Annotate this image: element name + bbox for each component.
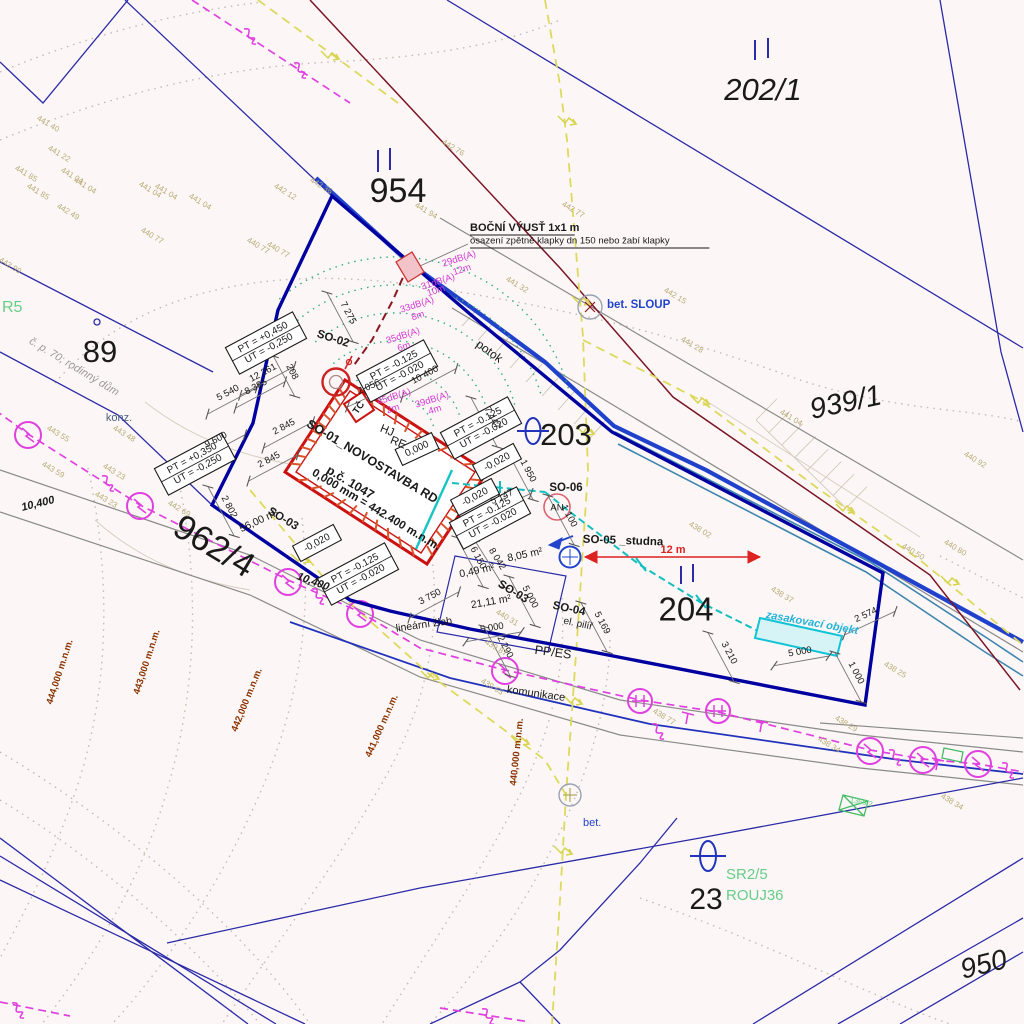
map-label: 442 77 <box>560 200 586 221</box>
map-label: 5 540 <box>215 383 241 404</box>
svg-text:bet.: bet. <box>583 817 601 829</box>
svg-text:438 02: 438 02 <box>687 520 713 541</box>
svg-text:10,400: 10,400 <box>20 494 56 514</box>
bank-hatch-stroke <box>807 449 828 470</box>
map-label: 440 92 <box>962 450 988 471</box>
map-label: SO-05 _studna <box>583 534 664 549</box>
map-label: 2 845 <box>271 417 297 438</box>
svg-text:440 92: 440 92 <box>962 450 988 471</box>
wall-hatch-stroke <box>290 464 301 465</box>
map-label: 438 02 <box>687 520 713 541</box>
map-label: 2 845 <box>256 450 282 471</box>
svg-text:204: 204 <box>658 591 713 628</box>
map-label: 443 48 <box>111 424 137 445</box>
svg-text:443 99: 443 99 <box>0 256 23 277</box>
svg-text:440 80: 440 80 <box>942 538 968 559</box>
svg-text:12 m: 12 m <box>660 544 685 556</box>
svg-text:21,11 m²: 21,11 m² <box>470 592 513 611</box>
map-label: 204 <box>658 591 713 628</box>
svg-text:438 34: 438 34 <box>939 792 965 813</box>
map-label: 442 76 <box>440 138 466 159</box>
map-label: 442 36 <box>308 176 334 197</box>
svg-text:443,000 m.n.m.: 443,000 m.n.m. <box>131 628 162 696</box>
map-label: 12 m <box>660 544 685 556</box>
svg-text:8,05 m²: 8,05 m² <box>506 545 544 564</box>
svg-text:441 28: 441 28 <box>679 335 705 356</box>
svg-text:konz.: konz. <box>106 412 132 424</box>
power-pole-symbol <box>965 751 991 777</box>
svg-text:441 85: 441 85 <box>13 164 39 185</box>
hydrant-symbol-sr25 <box>690 841 726 871</box>
svg-text:442,000 m.n.m.: 442,000 m.n.m. <box>229 667 265 734</box>
svg-text:7 275: 7 275 <box>338 300 359 326</box>
map-label: bet. <box>583 817 601 829</box>
level-box: PT = -0.125UT = -0.020 <box>317 543 398 605</box>
svg-text:komunikace: komunikace <box>506 684 566 704</box>
utility-squiggle-symbols <box>12 29 1014 1024</box>
map-label: 441 04 <box>778 408 804 429</box>
map-label: 441 04 <box>187 192 213 213</box>
svg-text:SR2/5: SR2/5 <box>726 866 768 883</box>
svg-text:441 04: 441 04 <box>778 408 804 429</box>
svg-text:osazení zpětné klapky dn 150 n: osazení zpětné klapky dn 150 nebo žabí k… <box>470 236 670 247</box>
svg-text:441 32: 441 32 <box>504 275 530 296</box>
squiggle-symbol <box>102 476 114 491</box>
map-label: 443 55 <box>45 424 71 445</box>
squiggle-symbol <box>889 750 901 765</box>
map-label: 7 275 <box>338 300 359 326</box>
power-pole-symbol <box>127 493 153 519</box>
bank-hatch-stroke <box>590 420 606 438</box>
bank-hatch-stroke <box>795 436 816 457</box>
map-label: 203 <box>540 417 592 452</box>
map-label: 1 950 <box>518 458 539 484</box>
map-label: 3 210 <box>719 640 740 666</box>
bank-hatch-stroke <box>846 487 867 508</box>
map-label: 1 100 <box>559 503 580 529</box>
map-label: 443 59 <box>40 460 66 481</box>
svg-text:lineární žlab: lineární žlab <box>395 615 453 635</box>
squiggle-symbol <box>244 29 256 44</box>
svg-text:441 40: 441 40 <box>35 114 61 135</box>
tick-204 <box>681 564 693 584</box>
map-label: 442 12 <box>272 182 298 203</box>
map-label: 442 49 <box>55 202 81 223</box>
map-label: 443 23 <box>93 490 119 511</box>
svg-text:442 49: 442 49 <box>55 202 81 223</box>
map-label: 441 22 <box>46 144 72 165</box>
svg-text:1 000: 1 000 <box>846 660 867 686</box>
map-label: konz. <box>106 412 132 424</box>
map-label: 8,05 m² <box>506 545 544 564</box>
map-label: 10,400 <box>20 494 56 514</box>
map-label: 440 80 <box>942 538 968 559</box>
svg-text:SO-02: SO-02 <box>315 328 350 350</box>
svg-text:2 845: 2 845 <box>271 417 297 438</box>
svg-text:1 100: 1 100 <box>559 503 580 529</box>
map-label: 441,000 m.n.m. <box>363 693 401 759</box>
map-label: SO-06 <box>549 482 582 494</box>
map-label: 441 04 <box>72 176 98 197</box>
svg-text:441 04: 441 04 <box>187 192 213 213</box>
svg-text:23: 23 <box>689 883 722 916</box>
svg-text:203: 203 <box>540 417 592 452</box>
map-label: 442,000 m.n.m. <box>229 667 265 734</box>
map-label: 438 34 <box>939 792 965 813</box>
svg-text:443 23: 443 23 <box>93 490 119 511</box>
map-label: 439 63 <box>479 677 505 698</box>
svg-text:440,000 m.n.m.: 440,000 m.n.m. <box>508 718 526 786</box>
svg-text:441 04: 441 04 <box>72 176 98 197</box>
svg-text:438 37: 438 37 <box>769 585 795 606</box>
map-label: 441 32 <box>504 275 530 296</box>
tick-954 <box>378 148 390 172</box>
map-label: osazení zpětné klapky dn 150 nebo žabí k… <box>470 236 709 248</box>
symbols-layer <box>517 295 726 871</box>
svg-text:443 55: 443 55 <box>45 424 71 445</box>
map-label: 438 34 <box>816 735 842 756</box>
svg-text:442 12: 442 12 <box>272 182 298 203</box>
wall-hatch-stroke <box>298 479 309 480</box>
map-label: 8 385 <box>243 377 269 398</box>
well-so02-inner <box>330 376 343 389</box>
map-label: SR2/5 <box>726 866 768 883</box>
cabinet-symbols-layer <box>839 748 963 816</box>
site-plan-drawing: PT = +0,450UT = -0,250PT = +0,350UT = -0… <box>0 0 1024 1024</box>
survey-point-circle <box>94 319 100 325</box>
slope-hatch-layer <box>462 308 867 508</box>
svg-text:1 950: 1 950 <box>518 458 539 484</box>
svg-text:438 25: 438 25 <box>882 660 908 681</box>
svg-text:bet. SLOUP: bet. SLOUP <box>607 299 671 311</box>
svg-text:438 34: 438 34 <box>816 735 842 756</box>
svg-text:202/1: 202/1 <box>723 72 802 107</box>
svg-text:1369 2: 1369 2 <box>849 795 873 809</box>
t-mark-symbol <box>682 712 694 724</box>
map-label: 444,000 m.n.m. <box>44 638 75 706</box>
svg-text:441 94: 441 94 <box>413 201 439 222</box>
map-label: 202/1 <box>723 72 802 107</box>
svg-text:SO-06: SO-06 <box>549 482 582 494</box>
map-label: 441 94 <box>413 201 439 222</box>
map-label: bet. SLOUP <box>607 299 671 311</box>
map-label: 440,000 m.n.m. <box>508 718 526 786</box>
svg-text:442 36: 442 36 <box>308 176 334 197</box>
svg-text:442 76: 442 76 <box>440 138 466 159</box>
svg-text:439 63: 439 63 <box>479 677 505 698</box>
svg-text:443 48: 443 48 <box>111 424 137 445</box>
svg-text:441 22: 441 22 <box>46 144 72 165</box>
power-pole-symbol <box>15 422 41 448</box>
map-label: 23 <box>689 883 722 916</box>
map-label: ROUJ36 <box>726 887 784 904</box>
svg-text:2 802: 2 802 <box>219 494 240 520</box>
tick-202-1 <box>755 38 768 60</box>
svg-text:BOČNÍ VÝUSŤ 1x1 m: BOČNÍ VÝUSŤ 1x1 m <box>470 221 580 234</box>
svg-text:R5: R5 <box>2 299 23 316</box>
bank-hatch-stroke <box>833 474 854 495</box>
svg-text:89: 89 <box>83 334 117 369</box>
map-label: 443,000 m.n.m. <box>131 628 162 696</box>
wall-hatch-stroke <box>463 464 474 465</box>
power-pole-symbol <box>492 658 518 684</box>
map-label: 939/1 <box>807 379 885 425</box>
svg-text:950: 950 <box>957 943 1010 984</box>
power-pole-symbol <box>857 738 883 764</box>
map-label: 89 <box>83 334 117 369</box>
svg-text:2 845: 2 845 <box>256 450 282 471</box>
map-label: SO-02 <box>315 328 350 350</box>
map-label: lineární žlab <box>395 615 453 635</box>
svg-text:443 59: 443 59 <box>40 460 66 481</box>
map-label: 441 28 <box>679 335 705 356</box>
site-plan-canvas: PT = +0,450UT = -0,250PT = +0,350UT = -0… <box>0 0 1024 1024</box>
map-label: komunikace <box>506 684 566 704</box>
gas-arrow-glyph <box>558 116 576 125</box>
map-label: 443 23 <box>101 462 127 483</box>
map-label: 440 50 <box>900 542 926 563</box>
svg-text:443 23: 443 23 <box>101 462 127 483</box>
map-label: 3 750 <box>417 587 443 608</box>
map-label: 1 000 <box>846 660 867 686</box>
map-label: BOČNÍ VÝUSŤ 1x1 m <box>470 221 580 235</box>
map-label: 441 40 <box>35 114 61 135</box>
map-label: 1369 2 <box>849 795 873 809</box>
map-label: 440 77 <box>139 226 165 247</box>
svg-text:8 385: 8 385 <box>243 377 269 398</box>
svg-text:5 540: 5 540 <box>215 383 241 404</box>
svg-text:939/1: 939/1 <box>807 379 885 425</box>
map-label: 443 99 <box>0 256 23 277</box>
map-label: 950 <box>957 943 1010 984</box>
svg-text:3 750: 3 750 <box>417 587 443 608</box>
svg-text:441,000 m.n.m.: 441,000 m.n.m. <box>363 693 401 759</box>
svg-text:441 85: 441 85 <box>25 182 51 203</box>
map-label: 21,11 m² <box>470 592 513 611</box>
map-label: 442 69 <box>166 499 192 520</box>
map-label: 441 85 <box>13 164 39 185</box>
svg-text:442 77: 442 77 <box>560 200 586 221</box>
svg-text:3 210: 3 210 <box>719 640 740 666</box>
map-label: 438 25 <box>882 660 908 681</box>
svg-text:SO-05 _studna: SO-05 _studna <box>583 534 664 549</box>
svg-text:ROUJ36: ROUJ36 <box>726 887 784 904</box>
map-label: R5 <box>2 299 23 316</box>
map-label: 5 169 <box>592 610 613 636</box>
map-label: 441 85 <box>25 182 51 203</box>
map-label: 0,49 m² <box>458 561 496 580</box>
svg-text:440 50: 440 50 <box>900 542 926 563</box>
svg-text:0,49 m²: 0,49 m² <box>458 561 496 580</box>
svg-text:442 69: 442 69 <box>166 499 192 520</box>
level-box: -0,020 <box>293 524 342 561</box>
svg-text:444,000 m.n.m.: 444,000 m.n.m. <box>44 638 75 706</box>
svg-text:440 77: 440 77 <box>139 226 165 247</box>
power-pole-symbol <box>910 747 936 773</box>
map-label: 2 802 <box>219 494 240 520</box>
level-box: -0,020 <box>473 443 522 480</box>
svg-text:5 169: 5 169 <box>592 610 613 636</box>
map-label: 438 37 <box>769 585 795 606</box>
